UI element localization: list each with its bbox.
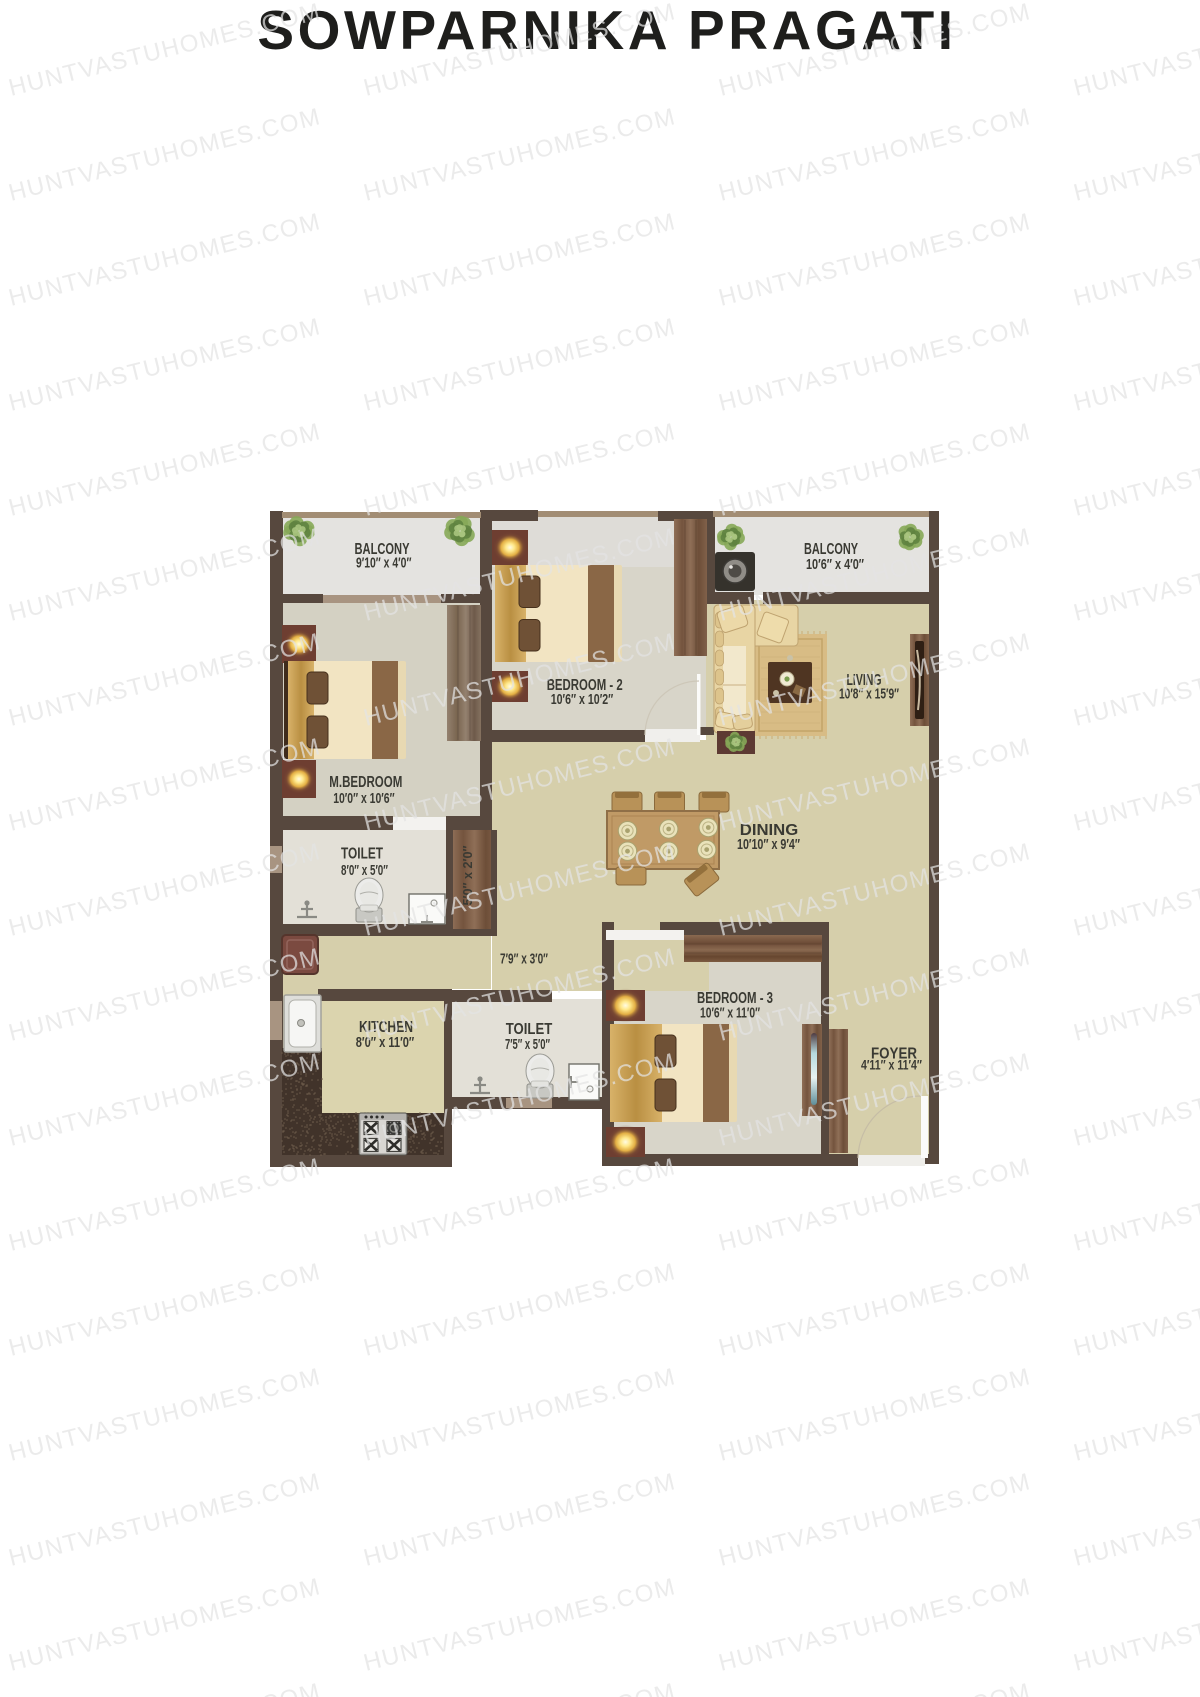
- svg-text:HUNTVASTUHOMES.COM: HUNTVASTUHOMES.COM: [6, 1363, 324, 1467]
- svg-text:HUNTVASTUHOMES.COM: HUNTVASTUHOMES.COM: [1071, 523, 1200, 627]
- svg-text:HUNTVASTUHOMES.COM: HUNTVASTUHOMES.COM: [1071, 1468, 1200, 1572]
- svg-text:TOILET: TOILET: [341, 846, 383, 863]
- svg-text:HUNTVASTUHOMES.COM: HUNTVASTUHOMES.COM: [1071, 1363, 1200, 1467]
- svg-text:HUNTVASTUHOMES.COM: HUNTVASTUHOMES.COM: [361, 103, 679, 207]
- svg-text:HUNTVASTUHOMES.COM: HUNTVASTUHOMES.COM: [361, 1363, 679, 1467]
- svg-text:HUNTVASTUHOMES.COM: HUNTVASTUHOMES.COM: [361, 1468, 679, 1572]
- svg-text:HUNTVASTUHOMES.COM: HUNTVASTUHOMES.COM: [1071, 943, 1200, 1047]
- svg-text:HUNTVASTUHOMES.COM: HUNTVASTUHOMES.COM: [6, 1573, 324, 1677]
- svg-text:HUNTVASTUHOMES.COM: HUNTVASTUHOMES.COM: [6, 313, 324, 417]
- svg-text:HUNTVASTUHOMES.COM: HUNTVASTUHOMES.COM: [716, 1678, 1034, 1697]
- svg-text:HUNTVASTUHOMES.COM: HUNTVASTUHOMES.COM: [6, 103, 324, 207]
- svg-text:10′0″ x 10′6″: 10′0″ x 10′6″: [333, 791, 394, 807]
- svg-text:TOILET: TOILET: [506, 1021, 553, 1038]
- svg-text:HUNTVASTUHOMES.COM: HUNTVASTUHOMES.COM: [1071, 838, 1200, 942]
- svg-text:10′10″ x 9′4″: 10′10″ x 9′4″: [737, 837, 800, 853]
- svg-text:HUNTVASTUHOMES.COM: HUNTVASTUHOMES.COM: [361, 1573, 679, 1677]
- svg-text:HUNTVASTUHOMES.COM: HUNTVASTUHOMES.COM: [1071, 628, 1200, 732]
- svg-text:HUNTVASTUHOMES.COM: HUNTVASTUHOMES.COM: [361, 313, 679, 417]
- svg-text:HUNTVASTUHOMES.COM: HUNTVASTUHOMES.COM: [361, 1258, 679, 1362]
- svg-text:9′10″ x 4′0″: 9′10″ x 4′0″: [356, 556, 412, 572]
- svg-text:7′5″ x 5′0″: 7′5″ x 5′0″: [505, 1037, 550, 1053]
- svg-text:HUNTVASTUHOMES.COM: HUNTVASTUHOMES.COM: [1071, 208, 1200, 312]
- svg-text:BALCONY: BALCONY: [804, 541, 858, 558]
- svg-text:HUNTVASTUHOMES.COM: HUNTVASTUHOMES.COM: [6, 1468, 324, 1572]
- svg-text:HUNTVASTUHOMES.COM: HUNTVASTUHOMES.COM: [1071, 1048, 1200, 1152]
- svg-text:HUNTVASTUHOMES.COM: HUNTVASTUHOMES.COM: [1071, 1153, 1200, 1257]
- svg-text:HUNTVASTUHOMES.COM: HUNTVASTUHOMES.COM: [716, 1573, 1034, 1677]
- svg-text:10′6″ x 11′0″: 10′6″ x 11′0″: [700, 1006, 760, 1022]
- svg-text:HUNTVASTUHOMES.COM: HUNTVASTUHOMES.COM: [361, 1678, 679, 1697]
- svg-text:10′6″ x 10′2″: 10′6″ x 10′2″: [551, 692, 614, 708]
- svg-text:HUNTVASTUHOMES.COM: HUNTVASTUHOMES.COM: [1071, 418, 1200, 522]
- svg-text:HUNTVASTUHOMES.COM: HUNTVASTUHOMES.COM: [1071, 1258, 1200, 1362]
- svg-text:KITCHEN: KITCHEN: [359, 1019, 413, 1036]
- svg-text:HUNTVASTUHOMES.COM: HUNTVASTUHOMES.COM: [6, 1678, 324, 1697]
- svg-text:8′0″ x 5′0″: 8′0″ x 5′0″: [341, 863, 388, 879]
- svg-text:10′8″ x 15′9″: 10′8″ x 15′9″: [839, 686, 899, 702]
- svg-text:HUNTVASTUHOMES.COM: HUNTVASTUHOMES.COM: [1071, 1573, 1200, 1677]
- svg-text:HUNTVASTUHOMES.COM: HUNTVASTUHOMES.COM: [1071, 1678, 1200, 1697]
- svg-text:HUNTVASTUHOMES.COM: HUNTVASTUHOMES.COM: [716, 313, 1034, 417]
- svg-text:7′9″ x 3′0″: 7′9″ x 3′0″: [500, 952, 548, 968]
- svg-text:HUNTVASTUHOMES.COM: HUNTVASTUHOMES.COM: [361, 208, 679, 312]
- svg-text:HUNTVASTUHOMES.COM: HUNTVASTUHOMES.COM: [1071, 313, 1200, 417]
- svg-text:HUNTVASTUHOMES.COM: HUNTVASTUHOMES.COM: [716, 1258, 1034, 1362]
- svg-text:4′11″ x 11′4″: 4′11″ x 11′4″: [861, 1058, 922, 1073]
- svg-text:HUNTVASTUHOMES.COM: HUNTVASTUHOMES.COM: [6, 208, 324, 312]
- svg-text:HUNTVASTUHOMES.COM: HUNTVASTUHOMES.COM: [716, 208, 1034, 312]
- svg-text:HUNTVASTUHOMES.COM: HUNTVASTUHOMES.COM: [716, 103, 1034, 207]
- svg-text:HUNTVASTUHOMES.COM: HUNTVASTUHOMES.COM: [6, 1258, 324, 1362]
- svg-text:10′6″ x 4′0″: 10′6″ x 4′0″: [806, 557, 864, 573]
- svg-text:HUNTVASTUHOMES.COM: HUNTVASTUHOMES.COM: [716, 1468, 1034, 1572]
- svg-text:5′0″ x 2′0″: 5′0″ x 2′0″: [461, 846, 475, 906]
- svg-text:8′0″ x 11′0″: 8′0″ x 11′0″: [356, 1035, 415, 1051]
- svg-text:HUNTVASTUHOMES.COM: HUNTVASTUHOMES.COM: [1071, 103, 1200, 207]
- svg-text:HUNTVASTUHOMES.COM: HUNTVASTUHOMES.COM: [1071, 733, 1200, 837]
- svg-text:BEDROOM - 3: BEDROOM - 3: [697, 990, 773, 1007]
- svg-text:M.BEDROOM: M.BEDROOM: [329, 774, 402, 791]
- svg-text:HUNTVASTUHOMES.COM: HUNTVASTUHOMES.COM: [716, 1363, 1034, 1467]
